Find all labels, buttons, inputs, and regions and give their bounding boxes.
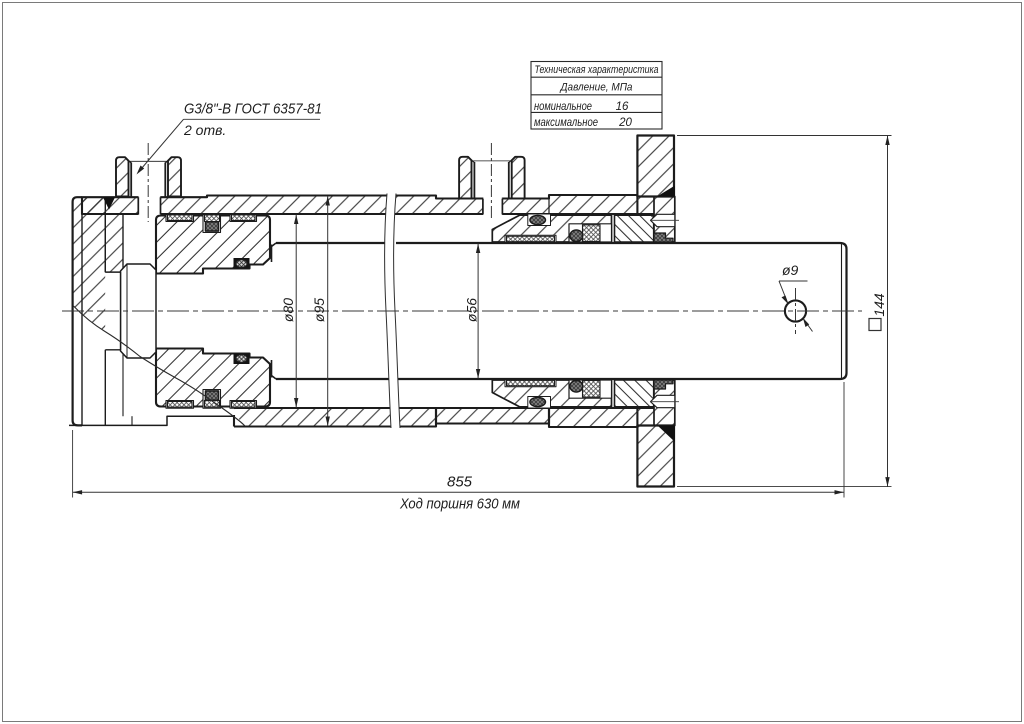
svg-text:ø9: ø9 (782, 262, 799, 278)
svg-text:144: 144 (871, 293, 887, 317)
svg-text:ø95: ø95 (311, 298, 327, 322)
svg-text:максимальное: максимальное (534, 117, 598, 129)
svg-text:G3/8"-В ГОСТ 6357-81: G3/8"-В ГОСТ 6357-81 (184, 102, 322, 118)
svg-text:ø80: ø80 (280, 298, 296, 322)
svg-text:Техническая характеристика: Техническая характеристика (535, 64, 659, 76)
svg-text:номинальное: номинальное (534, 101, 592, 113)
svg-text:Давление, МПа: Давление, МПа (559, 82, 633, 94)
svg-text:Ход поршня 630 мм: Ход поршня 630 мм (399, 497, 520, 513)
svg-text:20: 20 (618, 117, 632, 129)
svg-text:855: 855 (447, 474, 473, 491)
svg-text:ø56: ø56 (464, 298, 480, 322)
svg-text:2 отв.: 2 отв. (183, 122, 226, 138)
svg-text:16: 16 (616, 101, 629, 113)
